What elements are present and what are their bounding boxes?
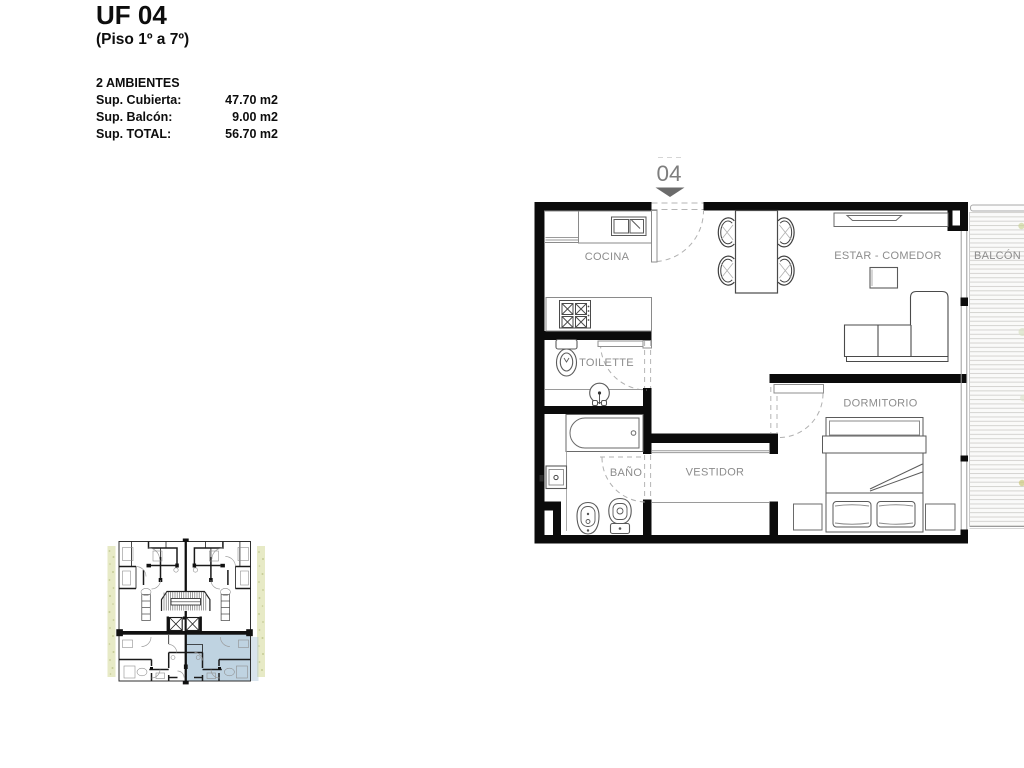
svg-text:COCINA: COCINA — [585, 251, 630, 263]
svg-text:BAÑO: BAÑO — [610, 466, 643, 479]
svg-text:9.00 m2: 9.00 m2 — [232, 110, 278, 124]
svg-text:UF 04: UF 04 — [96, 0, 167, 30]
svg-text:56.70 m2: 56.70 m2 — [225, 127, 278, 141]
svg-text:ESTAR - COMEDOR: ESTAR - COMEDOR — [834, 250, 942, 262]
svg-text:Sup. TOTAL:: Sup. TOTAL: — [96, 127, 171, 141]
svg-text:VESTIDOR: VESTIDOR — [686, 467, 745, 479]
svg-text:04: 04 — [656, 161, 681, 186]
svg-text:47.70 m2: 47.70 m2 — [225, 93, 278, 107]
svg-text:TOILETTE: TOILETTE — [579, 357, 634, 369]
svg-text:BALCÓN: BALCÓN — [974, 249, 1021, 262]
svg-text:Sup. Balcón:: Sup. Balcón: — [96, 110, 172, 124]
svg-text:2 AMBIENTES: 2 AMBIENTES — [96, 76, 180, 90]
svg-text:(Piso 1º a 7º): (Piso 1º a 7º) — [96, 31, 189, 48]
svg-text:DORMITORIO: DORMITORIO — [843, 398, 917, 410]
svg-text:Sup. Cubierta:: Sup. Cubierta: — [96, 93, 181, 107]
